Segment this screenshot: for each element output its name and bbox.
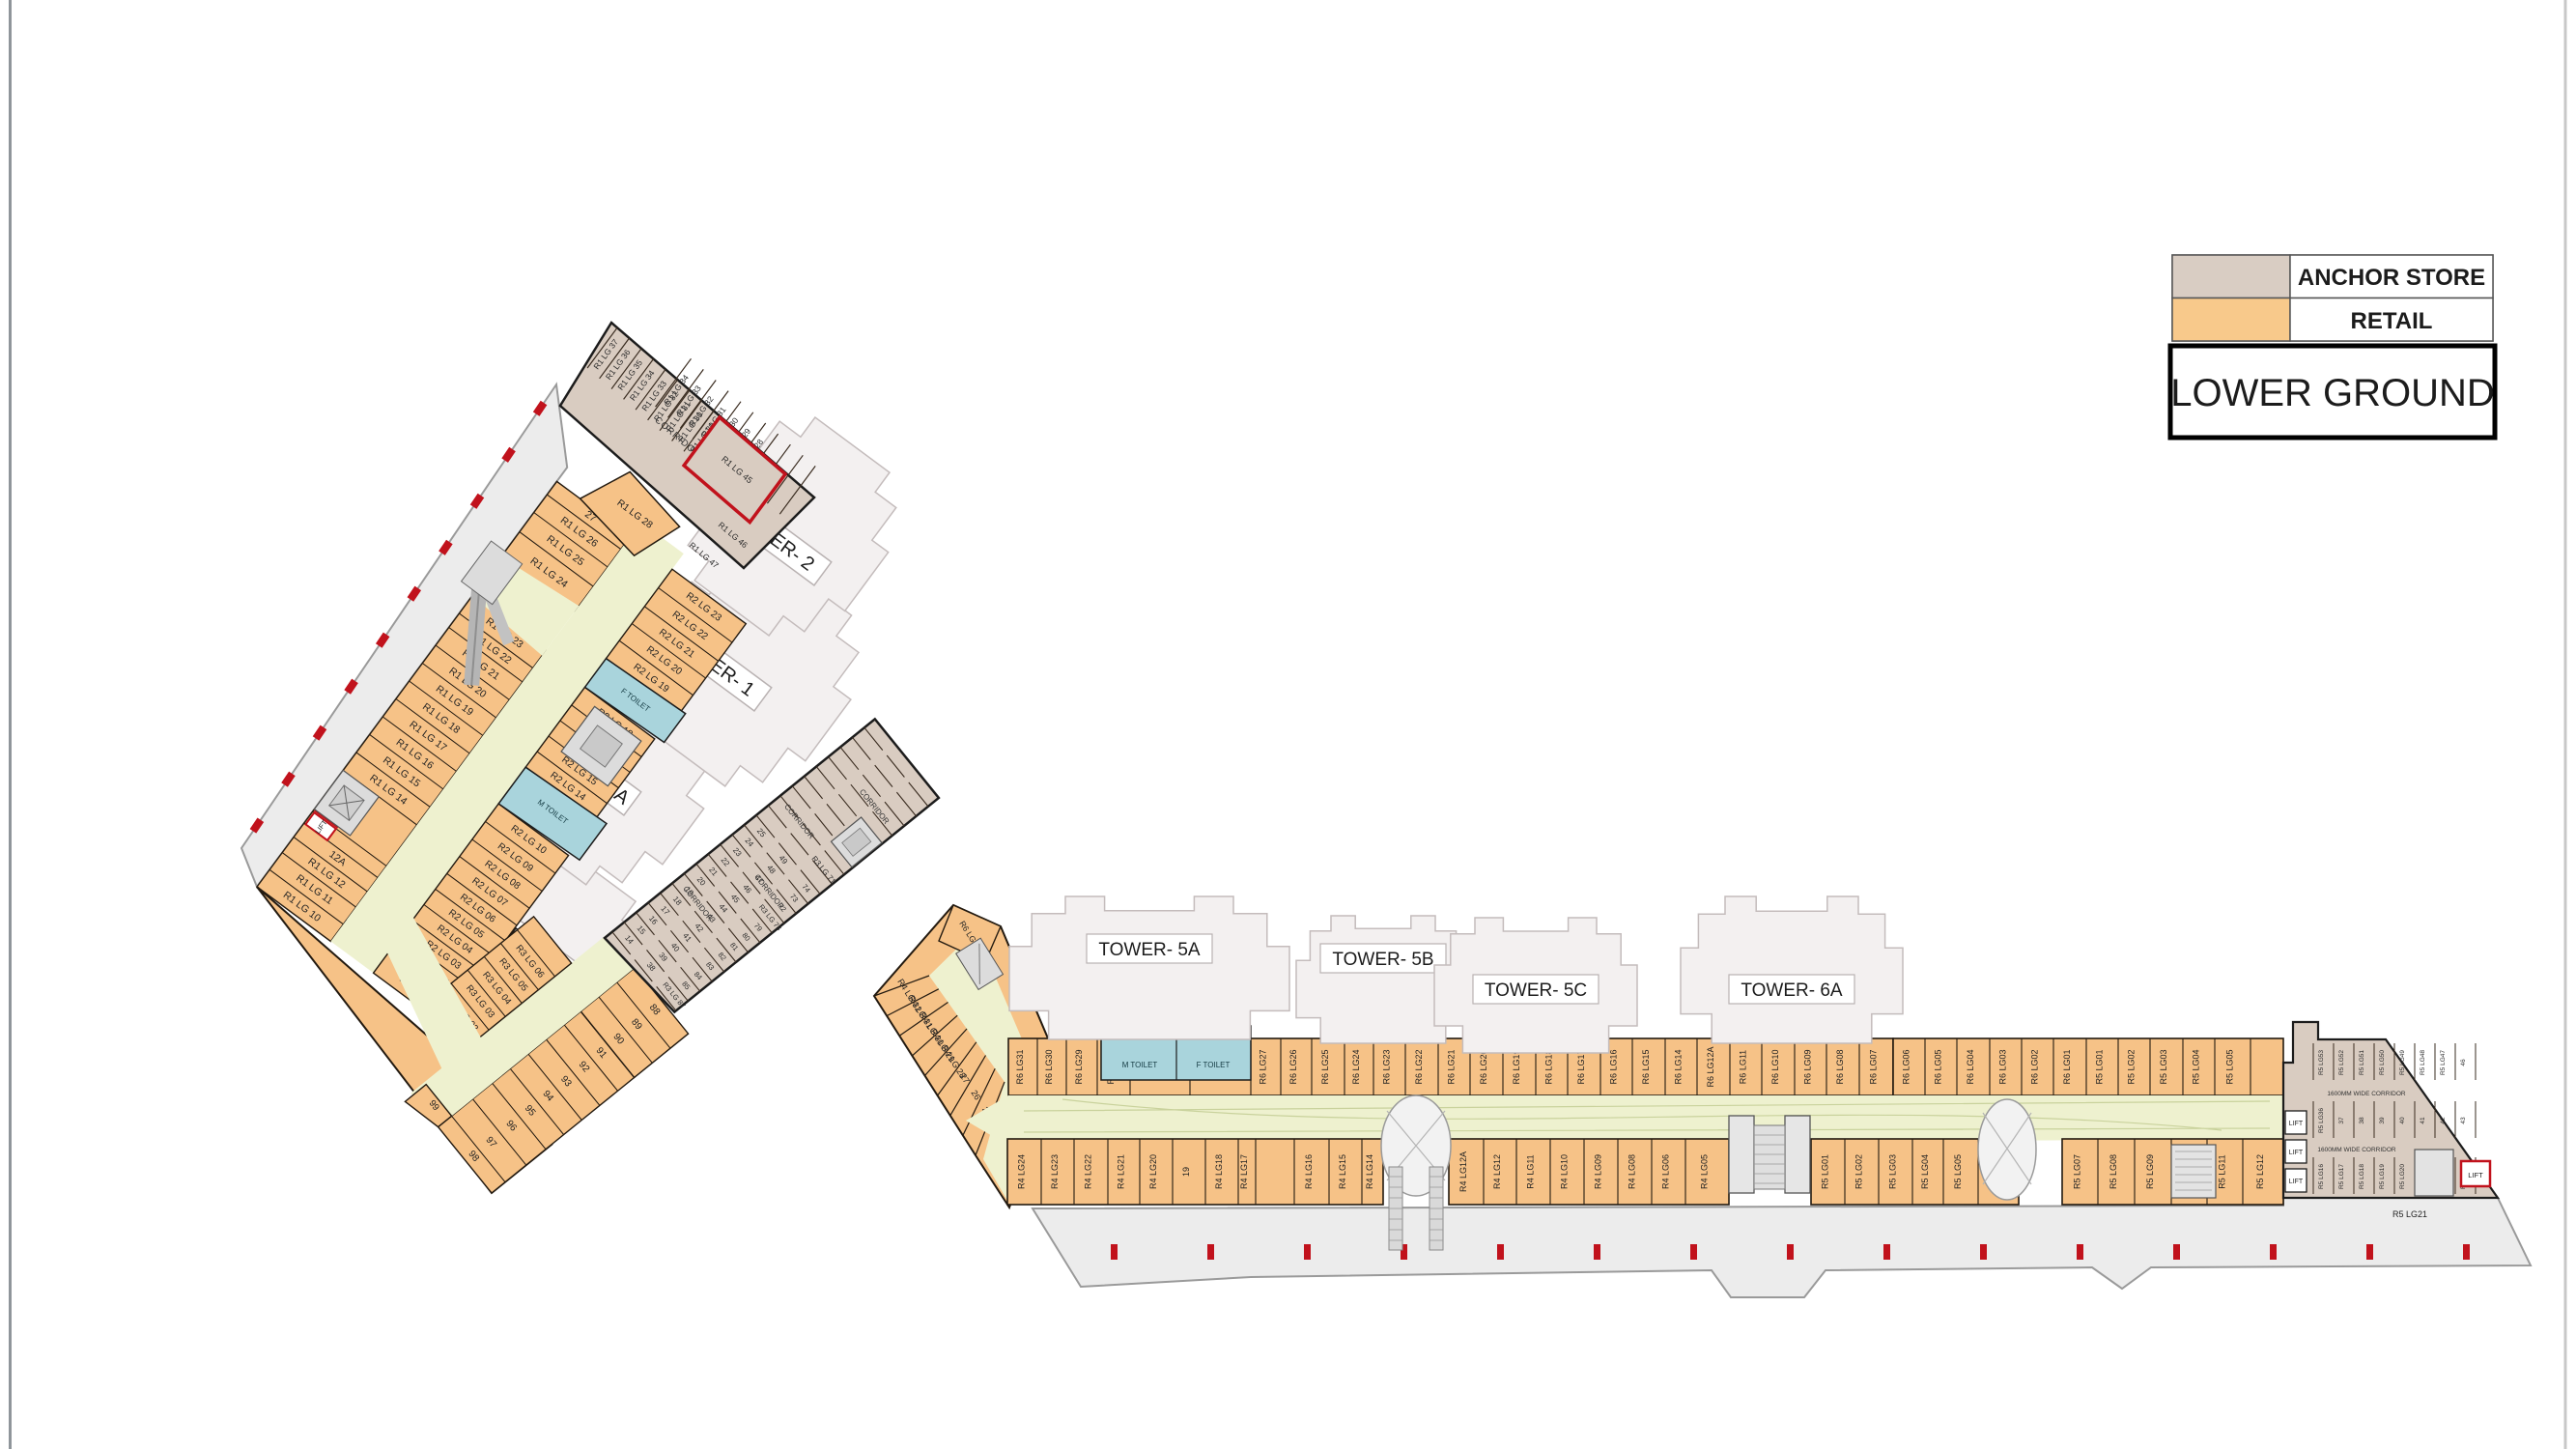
svg-text:TOWER- 5A: TOWER- 5A: [1098, 940, 1201, 960]
svg-text:R4 LG16: R4 LG16: [1304, 1154, 1314, 1189]
svg-text:R6 LG09: R6 LG09: [1803, 1049, 1813, 1084]
svg-text:LIFT: LIFT: [2468, 1171, 2483, 1179]
svg-text:39: 39: [2379, 1117, 2386, 1124]
svg-text:R4 LG08: R4 LG08: [1628, 1154, 1637, 1189]
svg-text:TOWER- 6A: TOWER- 6A: [1741, 980, 1843, 1001]
svg-text:RETAIL: RETAIL: [2351, 308, 2433, 334]
svg-text:R6 LG27: R6 LG27: [1259, 1049, 1268, 1084]
svg-text:M TOILET: M TOILET: [1122, 1061, 1158, 1069]
svg-text:R5 LG17: R5 LG17: [2338, 1164, 2345, 1189]
svg-text:R4 LG22: R4 LG22: [1084, 1154, 1093, 1189]
svg-text:R6 LG21: R6 LG21: [1447, 1049, 1457, 1084]
svg-text:R6 LG23: R6 LG23: [1382, 1049, 1392, 1084]
svg-text:R4 LG20: R4 LG20: [1148, 1154, 1158, 1189]
svg-text:R5 LG05: R5 LG05: [2225, 1049, 2235, 1084]
svg-text:1600MM WIDE CORRIDOR: 1600MM WIDE CORRIDOR: [2317, 1147, 2396, 1153]
svg-text:R5 LG05: R5 LG05: [1953, 1154, 1963, 1189]
svg-text:R5 LG50: R5 LG50: [2379, 1050, 2386, 1075]
svg-text:TOWER- 5B: TOWER- 5B: [1332, 950, 1433, 970]
svg-text:R4 LG14: R4 LG14: [1365, 1154, 1374, 1189]
svg-text:R4 LG10: R4 LG10: [1560, 1154, 1570, 1189]
svg-text:R5 LG36: R5 LG36: [2318, 1108, 2325, 1133]
svg-text:R6 LG24: R6 LG24: [1351, 1049, 1361, 1084]
svg-text:R5 LG04: R5 LG04: [1920, 1154, 1930, 1189]
svg-text:R5 LG12: R5 LG12: [2255, 1154, 2265, 1189]
svg-text:R5 LG47: R5 LG47: [2440, 1050, 2447, 1075]
svg-text:R6 LG01: R6 LG01: [2062, 1049, 2072, 1084]
svg-text:R4 LG21: R4 LG21: [1117, 1154, 1126, 1189]
svg-text:46: 46: [2460, 1059, 2467, 1066]
svg-text:R6 LG29: R6 LG29: [1074, 1049, 1084, 1084]
svg-text:R6 LG20: R6 LG20: [1479, 1049, 1488, 1084]
svg-text:R6 LG19: R6 LG19: [1512, 1049, 1521, 1084]
svg-text:R4 LG09: R4 LG09: [1594, 1154, 1603, 1189]
svg-text:R6 LG03: R6 LG03: [1998, 1049, 2008, 1084]
svg-text:41: 41: [2420, 1117, 2426, 1124]
svg-text:R5 LG08: R5 LG08: [2109, 1154, 2118, 1189]
svg-text:R6 LG10: R6 LG10: [1770, 1049, 1780, 1084]
svg-text:R6 LG02: R6 LG02: [2030, 1049, 2040, 1084]
svg-text:R5 LG16: R5 LG16: [2318, 1164, 2325, 1189]
svg-text:LIFT: LIFT: [2289, 1179, 2304, 1185]
svg-text:R5 LG01: R5 LG01: [1821, 1154, 1830, 1189]
svg-text:R6 LG26: R6 LG26: [1288, 1049, 1298, 1084]
svg-text:R6 LG12A: R6 LG12A: [1706, 1046, 1715, 1087]
svg-text:R5 LG02: R5 LG02: [2127, 1049, 2137, 1084]
svg-text:43: 43: [2460, 1117, 2467, 1124]
svg-text:R4 LG05: R4 LG05: [1700, 1154, 1710, 1189]
svg-text:R6 LG06: R6 LG06: [1902, 1049, 1911, 1084]
svg-text:R6 LG30: R6 LG30: [1044, 1049, 1054, 1084]
svg-text:R5 LG01: R5 LG01: [2095, 1049, 2105, 1084]
svg-text:F TOILET: F TOILET: [1197, 1061, 1231, 1069]
svg-text:R5 LG11: R5 LG11: [2218, 1154, 2227, 1188]
svg-text:TOWER- 5C: TOWER- 5C: [1485, 980, 1587, 1001]
svg-text:R6 LG11: R6 LG11: [1739, 1050, 1748, 1084]
svg-text:R5 LG19: R5 LG19: [2379, 1164, 2386, 1189]
svg-text:R4 LG23: R4 LG23: [1050, 1154, 1060, 1189]
svg-text:38: 38: [2359, 1117, 2365, 1124]
svg-text:R5 LG02: R5 LG02: [1854, 1154, 1864, 1189]
svg-text:R4 LG18: R4 LG18: [1214, 1154, 1224, 1189]
svg-text:R4 LG12A: R4 LG12A: [1458, 1151, 1468, 1192]
svg-text:R6 LG25: R6 LG25: [1320, 1049, 1330, 1084]
svg-text:R4 LG24: R4 LG24: [1017, 1154, 1027, 1189]
svg-text:1600MM WIDE CORRIDOR: 1600MM WIDE CORRIDOR: [2327, 1091, 2406, 1097]
svg-text:LIFT: LIFT: [2289, 1121, 2304, 1127]
svg-text:R5 LG04: R5 LG04: [2192, 1049, 2201, 1084]
svg-text:R6 LG17: R6 LG17: [1576, 1049, 1586, 1084]
svg-text:R6 LG07: R6 LG07: [1869, 1049, 1879, 1084]
svg-text:R6 LG14: R6 LG14: [1674, 1049, 1684, 1084]
svg-text:ANCHOR STORE: ANCHOR STORE: [2298, 265, 2485, 291]
svg-text:R5 LG07: R5 LG07: [2073, 1154, 2082, 1189]
svg-text:R6 LG15: R6 LG15: [1641, 1049, 1651, 1084]
svg-text:R6 LG31: R6 LG31: [1015, 1049, 1025, 1084]
svg-text:R6 LG18: R6 LG18: [1544, 1049, 1554, 1084]
svg-text:R4 LG17: R4 LG17: [1239, 1154, 1249, 1189]
svg-text:R6 LG08: R6 LG08: [1835, 1049, 1845, 1084]
svg-text:R5 LG21: R5 LG21: [2392, 1209, 2427, 1219]
svg-text:R6 LG16: R6 LG16: [1609, 1049, 1619, 1084]
svg-text:LOWER GROUND: LOWER GROUND: [2170, 372, 2495, 414]
svg-text:R6 LG05: R6 LG05: [1934, 1049, 1943, 1084]
svg-text:R5 LG53: R5 LG53: [2318, 1050, 2325, 1075]
svg-text:19: 19: [1181, 1167, 1191, 1177]
svg-text:40: 40: [2399, 1117, 2406, 1124]
svg-text:R6 LG04: R6 LG04: [1966, 1049, 1975, 1084]
svg-text:R5 LG52: R5 LG52: [2338, 1050, 2345, 1075]
svg-text:R5 LG20: R5 LG20: [2399, 1164, 2406, 1189]
svg-text:R5 LG18: R5 LG18: [2359, 1164, 2365, 1189]
svg-text:R4 LG11: R4 LG11: [1526, 1154, 1536, 1188]
svg-text:R5 LG48: R5 LG48: [2420, 1050, 2426, 1075]
svg-text:37: 37: [2338, 1117, 2345, 1124]
svg-text:R5 LG09: R5 LG09: [2145, 1154, 2155, 1189]
svg-text:R5 LG03: R5 LG03: [2159, 1049, 2168, 1084]
svg-text:R5 LG03: R5 LG03: [1888, 1154, 1898, 1189]
svg-text:R6 LG22: R6 LG22: [1414, 1049, 1424, 1084]
svg-text:R5 LG49: R5 LG49: [2399, 1050, 2406, 1075]
svg-text:LIFT: LIFT: [2289, 1150, 2304, 1156]
svg-text:R4 LG15: R4 LG15: [1338, 1154, 1347, 1189]
svg-text:R4 LG06: R4 LG06: [1661, 1154, 1671, 1189]
svg-text:R5 LG51: R5 LG51: [2359, 1050, 2365, 1075]
svg-text:R4 LG12: R4 LG12: [1492, 1154, 1502, 1189]
svg-text:42: 42: [2440, 1117, 2447, 1124]
